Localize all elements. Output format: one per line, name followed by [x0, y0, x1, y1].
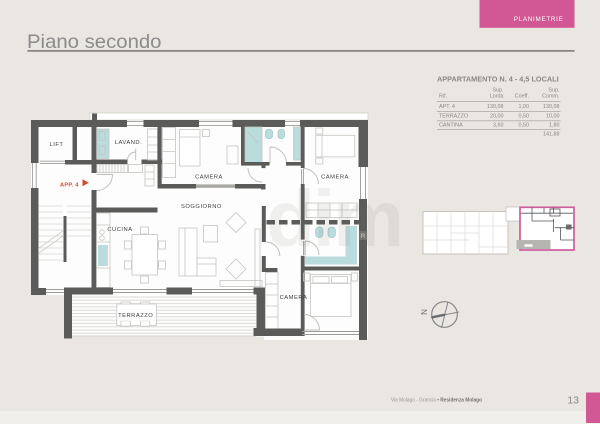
svg-text:dim: dim: [266, 174, 402, 263]
svg-text:APT. 4: APT. 4: [439, 104, 455, 110]
svg-text:CANTINA: CANTINA: [439, 122, 463, 128]
svg-text:13: 13: [567, 395, 579, 407]
svg-text:10,00: 10,00: [546, 113, 560, 119]
svg-text:0,50: 0,50: [519, 122, 530, 128]
svg-text:APP. 4: APP. 4: [60, 182, 79, 188]
svg-text:PLANIMETRIE: PLANIMETRIE: [514, 16, 564, 23]
svg-text:1,80: 1,80: [549, 122, 560, 128]
svg-text:LAVAND.: LAVAND.: [115, 140, 142, 146]
svg-text:TERRAZZO: TERRAZZO: [118, 313, 153, 319]
svg-text:Coeff.: Coeff.: [515, 94, 529, 100]
svg-text:141,88: 141,88: [543, 131, 560, 137]
svg-text:N: N: [420, 309, 429, 315]
svg-text:LIFT: LIFT: [50, 142, 64, 148]
svg-text:SOGGIORNO: SOGGIORNO: [181, 204, 222, 210]
svg-text:Rif.: Rif.: [439, 94, 447, 100]
svg-text:TERRAZZO: TERRAZZO: [439, 113, 468, 119]
svg-text:1,00: 1,00: [519, 104, 530, 110]
svg-text:CAMERA: CAMERA: [195, 175, 223, 181]
svg-text:Via Molago - Grancia • Residen: Via Molago - Grancia • Residenza Molago: [391, 398, 482, 404]
svg-text:CUCINA: CUCINA: [107, 227, 132, 233]
svg-text:Lorda: Lorda: [490, 94, 504, 100]
svg-text:Piano secondo: Piano secondo: [27, 31, 162, 53]
svg-text:CAMERA: CAMERA: [280, 295, 308, 301]
svg-text:130,08: 130,08: [543, 104, 560, 110]
svg-text:APPARTAMENTO N. 4 - 4,5 LOCALI: APPARTAMENTO N. 4 - 4,5 LOCALI: [437, 75, 559, 84]
svg-text:3,60: 3,60: [493, 122, 504, 128]
svg-text:Comm.: Comm.: [542, 94, 559, 100]
svg-text:0,50: 0,50: [519, 113, 530, 119]
svg-text:20,00: 20,00: [490, 113, 504, 119]
svg-text:R: R: [361, 233, 366, 240]
svg-text:130,08: 130,08: [487, 104, 504, 110]
